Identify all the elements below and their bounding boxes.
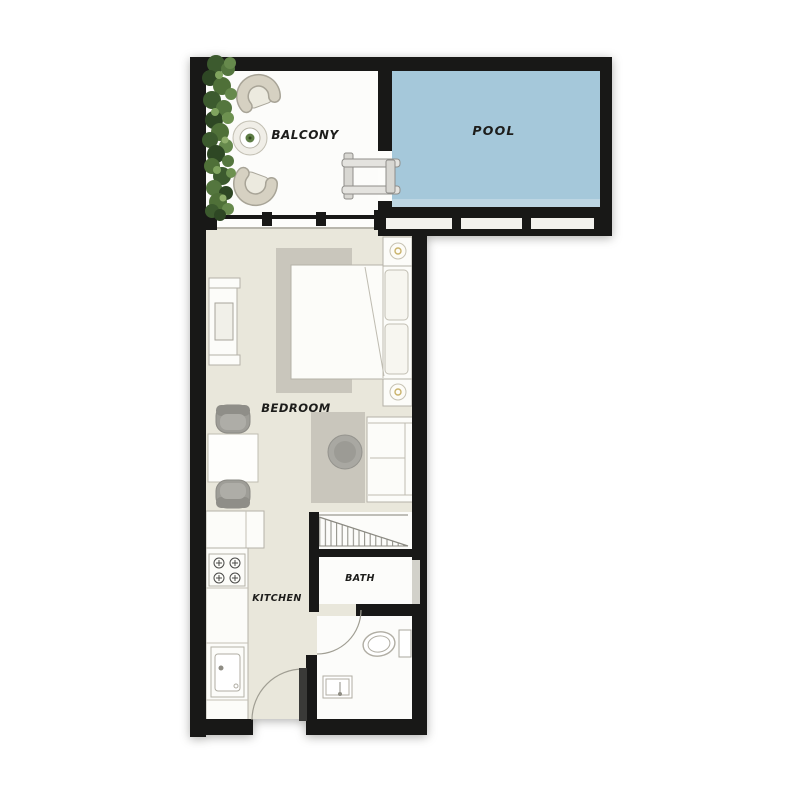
balcony-side-table — [233, 121, 267, 155]
nightstand-bottom — [383, 379, 412, 406]
entrance-door-leaf — [299, 668, 307, 721]
dining-table — [208, 434, 258, 482]
window-mullion — [522, 216, 531, 231]
floor-plan: BALCONY POOL BEDROOM KITCHEN BATH — [0, 0, 800, 800]
wall-niche — [412, 560, 420, 604]
tv — [215, 303, 233, 340]
pool-label: POOL — [472, 123, 515, 138]
bath-floor-lower — [317, 616, 412, 719]
wall-bath-mid — [356, 604, 427, 616]
wall-closet-vertical — [309, 512, 319, 612]
kitchen-label: KITCHEN — [252, 593, 302, 604]
tv-console — [209, 278, 240, 365]
pool-area — [392, 71, 600, 207]
kitchen-sink — [211, 647, 244, 697]
bath-sink — [323, 676, 352, 698]
pool-water — [392, 71, 600, 207]
kitchen-counter-top — [206, 511, 264, 548]
wall-right — [412, 228, 427, 735]
bed — [291, 265, 412, 379]
dining-chair — [216, 405, 250, 433]
ottoman — [328, 435, 362, 469]
bedroom-label: BEDROOM — [261, 401, 331, 415]
wall-bottom-right — [306, 719, 427, 735]
window-mullion — [262, 212, 272, 226]
window-mullion — [452, 216, 461, 231]
wall-bottom-left — [190, 719, 253, 735]
wall-closet-bottom — [309, 549, 427, 557]
wall-left — [190, 57, 206, 737]
wall-bath-lower-left — [306, 655, 317, 721]
faucet-icon — [219, 666, 224, 671]
floor-plan-drawing: BALCONY POOL BEDROOM KITCHEN BATH — [0, 0, 800, 800]
pillow — [385, 324, 408, 374]
lamp-icon — [390, 243, 406, 259]
balcony-label: BALCONY — [271, 128, 339, 142]
stove — [209, 554, 245, 586]
window-mullion — [316, 212, 326, 226]
dining-chair — [216, 480, 250, 508]
pillow — [385, 270, 408, 320]
pool-window-band — [386, 216, 594, 231]
dining-set — [208, 405, 258, 508]
bath-label: BATH — [345, 573, 375, 584]
lamp-icon — [390, 384, 406, 400]
nightstand-top — [383, 237, 412, 266]
pool-shallow-edge — [392, 199, 600, 207]
sofa — [367, 417, 413, 502]
